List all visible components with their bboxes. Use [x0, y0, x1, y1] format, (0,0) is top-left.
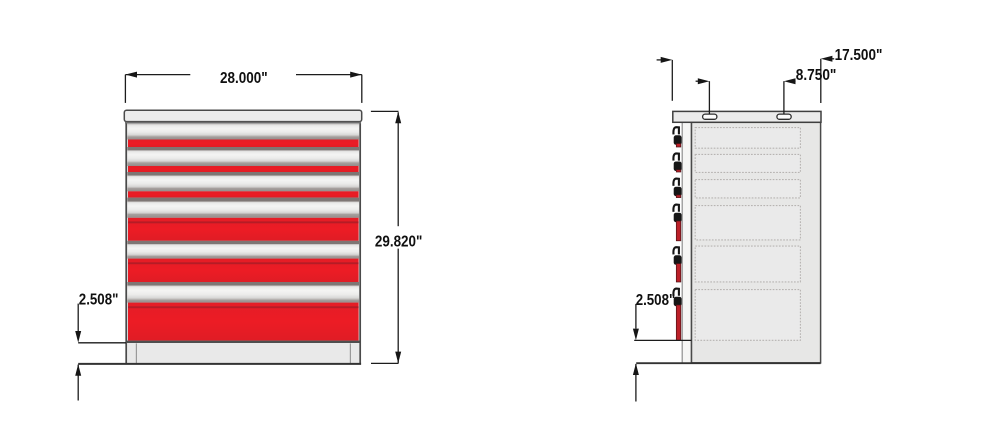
svg-text:2.508": 2.508": [79, 291, 119, 309]
svg-text:2.508": 2.508": [636, 291, 676, 309]
svg-text:29.820": 29.820": [375, 232, 423, 250]
svg-text:8.750": 8.750": [796, 66, 837, 84]
svg-text:17.500": 17.500": [835, 46, 883, 64]
svg-text:28.000": 28.000": [220, 69, 268, 87]
